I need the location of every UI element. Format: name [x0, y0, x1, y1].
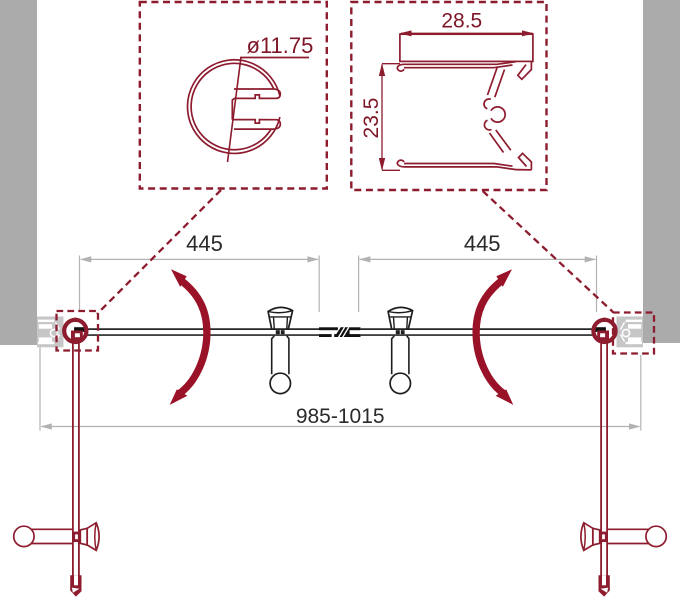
svg-text:23.5: 23.5 [360, 98, 383, 139]
svg-text:28.5: 28.5 [441, 10, 482, 33]
svg-text:445: 445 [186, 231, 223, 256]
svg-text:985-1015: 985-1015 [296, 405, 385, 428]
svg-text:ø11.75: ø11.75 [247, 33, 314, 58]
svg-text:445: 445 [464, 231, 501, 256]
